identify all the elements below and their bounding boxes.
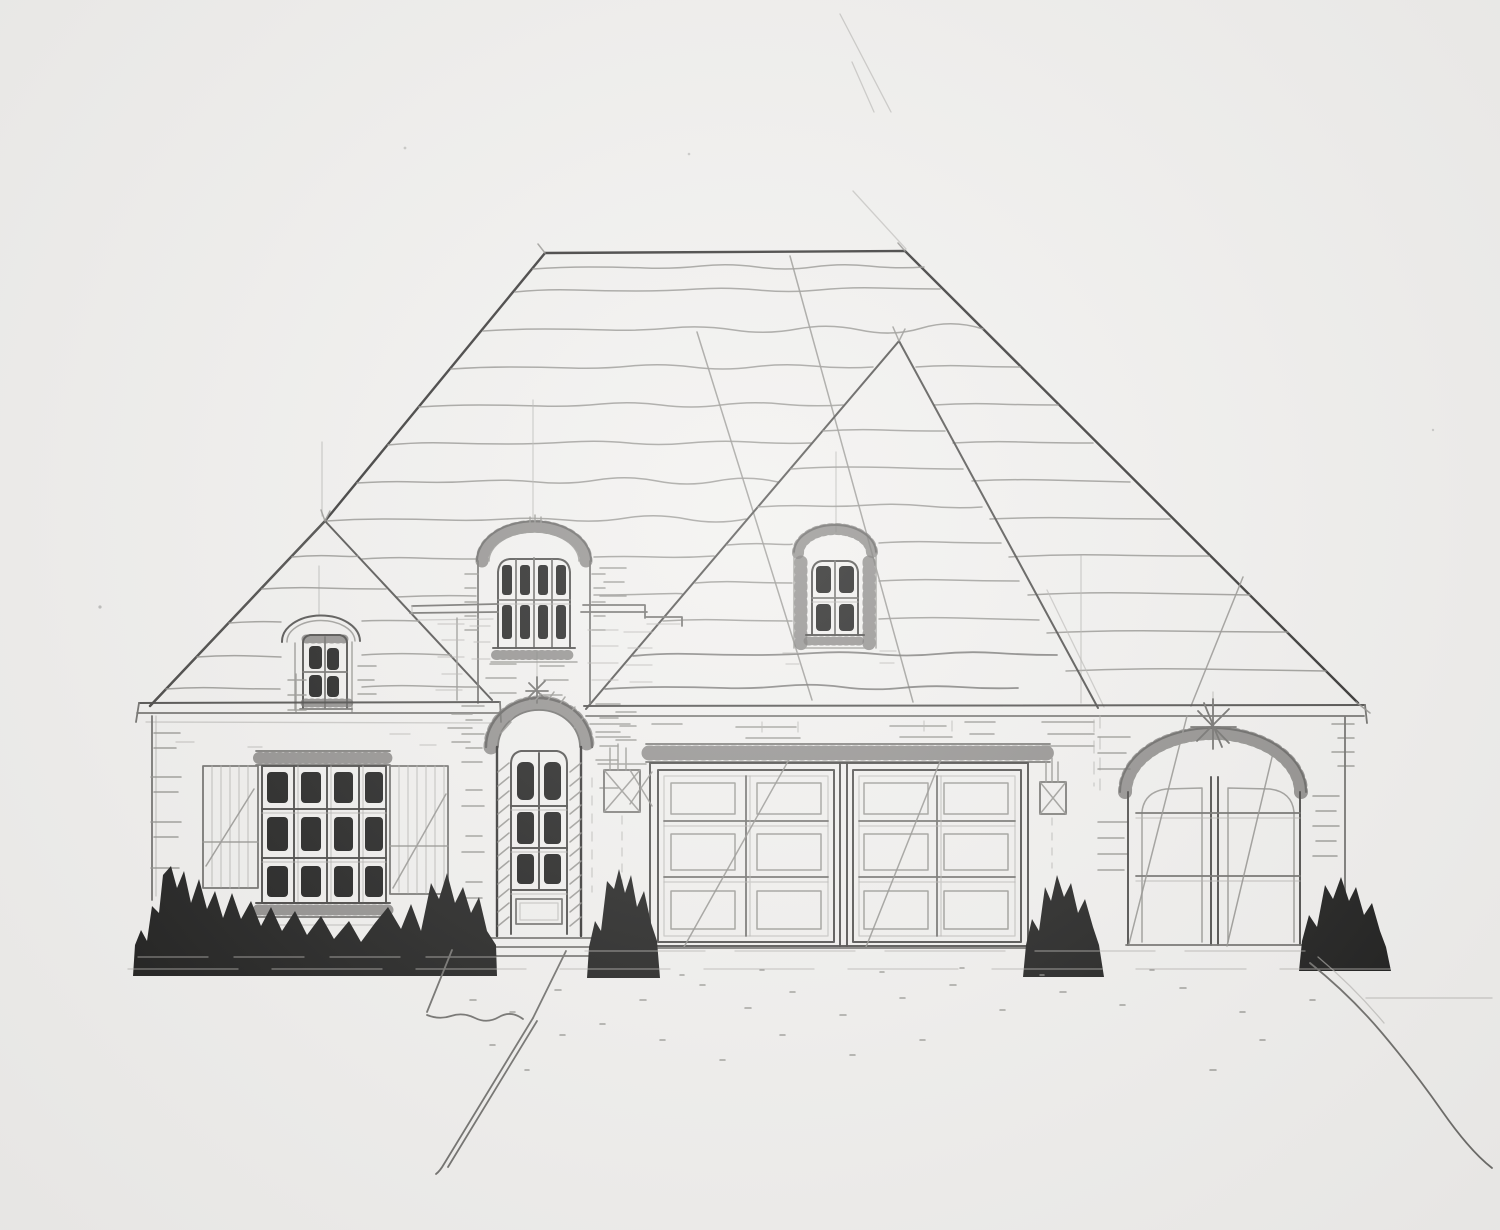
driveway-edge <box>1310 963 1492 1168</box>
paper-speck <box>1432 429 1434 431</box>
garage-center-post <box>840 763 847 946</box>
sketch-paper <box>0 0 1500 1230</box>
garage-construction-diagonals <box>684 756 941 947</box>
shrub-far-right <box>1299 877 1391 971</box>
single-garage-right-leaf <box>1228 788 1294 942</box>
left-wing-shingle-lines <box>166 556 479 689</box>
paper-speck <box>688 153 691 156</box>
sky-scratch-lines <box>98 14 1434 609</box>
main-roof <box>150 243 1358 718</box>
roof-ridge <box>545 251 905 253</box>
ground-speckles <box>470 968 1315 1070</box>
paper-speck <box>98 605 101 608</box>
left-dormer <box>282 615 376 712</box>
left-window-panes <box>267 772 383 897</box>
single-garage-left-pier-bricks <box>1098 737 1130 870</box>
left-wing-fascia <box>139 702 500 703</box>
double-garage <box>590 716 1100 948</box>
walkway <box>427 950 566 1174</box>
left-wing-left-edge <box>150 521 325 706</box>
ground <box>128 950 1492 1174</box>
main-fascia <box>584 705 1365 706</box>
center-dormer <box>465 515 605 703</box>
garage-door-left <box>658 770 834 942</box>
single-garage <box>1098 699 1354 950</box>
single-garage-center-post <box>1211 777 1218 945</box>
house-elevation-sketch <box>0 0 1500 1230</box>
front-hip-shingle-lines <box>605 430 1057 690</box>
right-dormer <box>783 525 896 664</box>
single-garage-left-leaf <box>1142 788 1202 942</box>
single-garage-jambs <box>1128 792 1300 945</box>
front-hip-left-edge <box>586 341 899 709</box>
left-wing-right-edge <box>325 521 492 700</box>
shrub-garage-right <box>1023 875 1104 977</box>
garage-lantern <box>1040 758 1066 868</box>
door-left-quoins <box>462 706 484 898</box>
center-dormer-jamb-bricks <box>465 574 605 630</box>
entry-lantern <box>598 744 646 890</box>
paper-speck <box>404 147 407 150</box>
door-steps <box>479 938 601 956</box>
single-garage-finial <box>1191 699 1236 749</box>
left-cornice <box>410 604 498 613</box>
